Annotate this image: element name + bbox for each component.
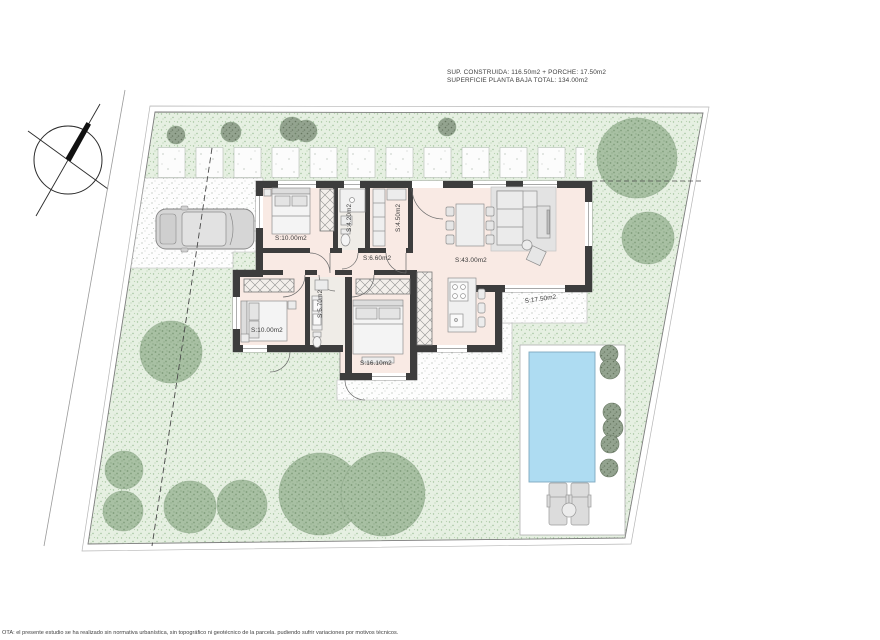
storage-counter: [373, 189, 385, 246]
entry-opening: [412, 181, 443, 188]
label-bedroom-2: S:10.00m2: [251, 327, 283, 334]
site-plan-page: S:10.00m2 S:4.20m2 S:4.50m2 S:6.60m2 S:4…: [0, 0, 880, 640]
toilet: [341, 234, 350, 246]
dining-table: [456, 204, 484, 246]
label-living-kitchen: S:43.00m2: [455, 257, 487, 264]
boiler-unit: [387, 189, 406, 200]
label-master-bedroom: S:16.10m2: [360, 360, 392, 367]
toilet-2: [313, 337, 321, 348]
paver-path: [157, 146, 584, 179]
label-bedroom-1: S:10.00m2: [275, 235, 307, 242]
label-hallway: S:6.60m2: [363, 255, 391, 262]
car: [156, 206, 254, 252]
nightstand: [264, 189, 271, 196]
side-table: [562, 503, 576, 517]
disclaimer-note: OTA: el presente estudio se ha realizado…: [2, 630, 399, 636]
label-storage-room: S:4.50m2: [395, 204, 402, 232]
bush: [167, 126, 185, 144]
nightstand-2: [288, 301, 296, 309]
desk: [241, 334, 249, 342]
washing-machine: [315, 280, 328, 290]
tree: [597, 118, 677, 198]
coffee-table: [522, 240, 532, 250]
area-note-line2: SUPERFICIE PLANTA BAJA TOTAL: 134.00m2: [447, 77, 588, 84]
label-bathroom-1: S:4.20m2: [346, 204, 353, 232]
site-plan-drawing: S:10.00m2 S:4.20m2 S:4.50m2 S:6.60m2 S:4…: [0, 0, 880, 640]
stool: [478, 289, 485, 299]
label-bathroom-2: S:5.70m2: [317, 290, 324, 318]
area-note-line1: SUP. CONSTRUIDA: 116.50m2 + PORCHE: 17.5…: [447, 69, 606, 76]
swimming-pool: [529, 352, 595, 482]
